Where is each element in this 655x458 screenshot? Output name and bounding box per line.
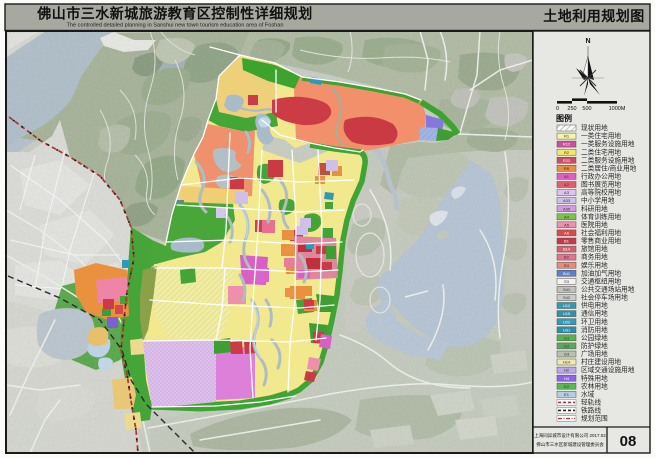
svg-text:0: 0 — [556, 106, 559, 112]
svg-text:佛山市三水区新城建设管理委员会: 佛山市三水区新城建设管理委员会 — [536, 441, 604, 448]
svg-text:高等院校用地: 高等院校用地 — [581, 188, 621, 197]
svg-text:E2: E2 — [564, 384, 570, 389]
svg-text:08: 08 — [620, 433, 637, 450]
svg-text:A2: A2 — [564, 182, 570, 187]
svg-text:250: 250 — [567, 106, 576, 112]
svg-text:S41: S41 — [563, 287, 571, 292]
svg-text:B41: B41 — [563, 271, 571, 276]
svg-text:S42: S42 — [563, 295, 571, 300]
svg-text:农林用地: 农林用地 — [581, 381, 608, 390]
svg-text:G1: G1 — [564, 335, 570, 340]
svg-text:R22: R22 — [563, 158, 571, 163]
svg-text:旅馆用地: 旅馆用地 — [581, 244, 608, 253]
svg-text:R1: R1 — [564, 134, 570, 139]
svg-text:供电用地: 供电用地 — [581, 301, 608, 310]
svg-text:A4: A4 — [564, 214, 570, 219]
svg-text:G3: G3 — [564, 352, 570, 357]
svg-text:1000M: 1000M — [609, 106, 626, 112]
svg-text:图书展览用地: 图书展览用地 — [581, 180, 621, 189]
svg-text:A1: A1 — [564, 174, 570, 179]
svg-text:A5: A5 — [564, 222, 570, 227]
svg-text:H14: H14 — [563, 360, 571, 365]
svg-text:B2: B2 — [564, 255, 570, 260]
svg-text:图例: 图例 — [556, 113, 572, 123]
svg-text:现状用地: 现状用地 — [581, 123, 608, 132]
svg-text:零售商业用地: 零售商业用地 — [581, 236, 621, 245]
svg-text:水域: 水域 — [581, 389, 595, 398]
svg-text:佛山市三水新城旅游教育区控制性详细规划: 佛山市三水新城旅游教育区控制性详细规划 — [36, 6, 313, 22]
svg-text:H4: H4 — [564, 376, 570, 381]
svg-text:商务用地: 商务用地 — [581, 252, 608, 261]
svg-text:娱乐用地: 娱乐用地 — [581, 260, 608, 269]
svg-text:U22: U22 — [563, 319, 571, 324]
svg-text:社会停车场用地: 社会停车场用地 — [581, 293, 628, 302]
svg-text:U12: U12 — [563, 303, 571, 308]
svg-text:A6: A6 — [564, 231, 570, 236]
svg-text:土地利用规划图: 土地利用规划图 — [543, 8, 645, 24]
svg-text:行政办公用地: 行政办公用地 — [581, 172, 621, 181]
svg-text:环卫用地: 环卫用地 — [581, 317, 608, 326]
svg-text:体育训练用地: 体育训练用地 — [581, 212, 621, 221]
svg-text:E1: E1 — [564, 392, 570, 397]
svg-text:公园绿地: 公园绿地 — [581, 333, 608, 342]
svg-text:G2: G2 — [564, 344, 570, 349]
svg-text:A33: A33 — [563, 198, 571, 203]
svg-text:加油加气用地: 加油加气用地 — [581, 268, 621, 277]
svg-text:上海同异城市设计有限公司 2017.02: 上海同异城市设计有限公司 2017.02 — [534, 432, 606, 439]
svg-text:The controlled detailed planni: The controlled detailed planning in Sans… — [66, 23, 283, 29]
svg-text:特殊用地: 特殊用地 — [581, 373, 608, 382]
svg-text:B3: B3 — [564, 263, 570, 268]
svg-text:防护绿地: 防护绿地 — [581, 341, 608, 350]
svg-text:A35: A35 — [563, 206, 571, 211]
svg-text:A3: A3 — [564, 190, 570, 195]
svg-text:H2: H2 — [564, 368, 570, 373]
svg-text:规划范围: 规划范围 — [581, 414, 608, 423]
svg-text:U15: U15 — [563, 311, 571, 316]
svg-text:S3: S3 — [564, 279, 570, 284]
svg-text:中小学用地: 中小学用地 — [581, 196, 615, 205]
svg-text:科研用地: 科研用地 — [581, 204, 608, 213]
svg-text:轻轨线: 轻轨线 — [581, 398, 601, 407]
svg-text:社会福利用地: 社会福利用地 — [581, 228, 621, 237]
svg-text:广场用地: 广场用地 — [581, 349, 608, 358]
svg-text:通信用地: 通信用地 — [581, 309, 608, 318]
svg-text:U31: U31 — [563, 327, 571, 332]
svg-text:一类服务设施用地: 一类服务设施用地 — [581, 139, 635, 148]
svg-text:交通枢纽用地: 交通枢纽用地 — [581, 276, 621, 285]
svg-text:R12: R12 — [563, 142, 571, 147]
svg-text:B1: B1 — [564, 239, 570, 244]
svg-text:一类住宅用地: 一类住宅用地 — [581, 131, 621, 140]
svg-text:铁路线: 铁路线 — [581, 406, 601, 415]
svg-text:村庄建设用地: 村庄建设用地 — [581, 357, 621, 366]
svg-text:公共交通场站用地: 公共交通场站用地 — [581, 285, 635, 294]
svg-text:二类居住/商业用地: 二类居住/商业用地 — [581, 163, 637, 172]
svg-text:二类住宅用地: 二类住宅用地 — [581, 147, 621, 156]
svg-text:N: N — [585, 38, 590, 45]
svg-text:B14: B14 — [563, 247, 571, 252]
svg-text:区域交通设施用地: 区域交通设施用地 — [581, 365, 635, 374]
svg-text:RB: RB — [564, 166, 570, 171]
svg-text:医院用地: 医院用地 — [581, 220, 608, 229]
svg-text:二类服务设施用地: 二类服务设施用地 — [581, 155, 635, 164]
svg-text:500: 500 — [582, 106, 591, 112]
svg-text:R2: R2 — [564, 150, 570, 155]
svg-text:消防用地: 消防用地 — [581, 325, 608, 334]
